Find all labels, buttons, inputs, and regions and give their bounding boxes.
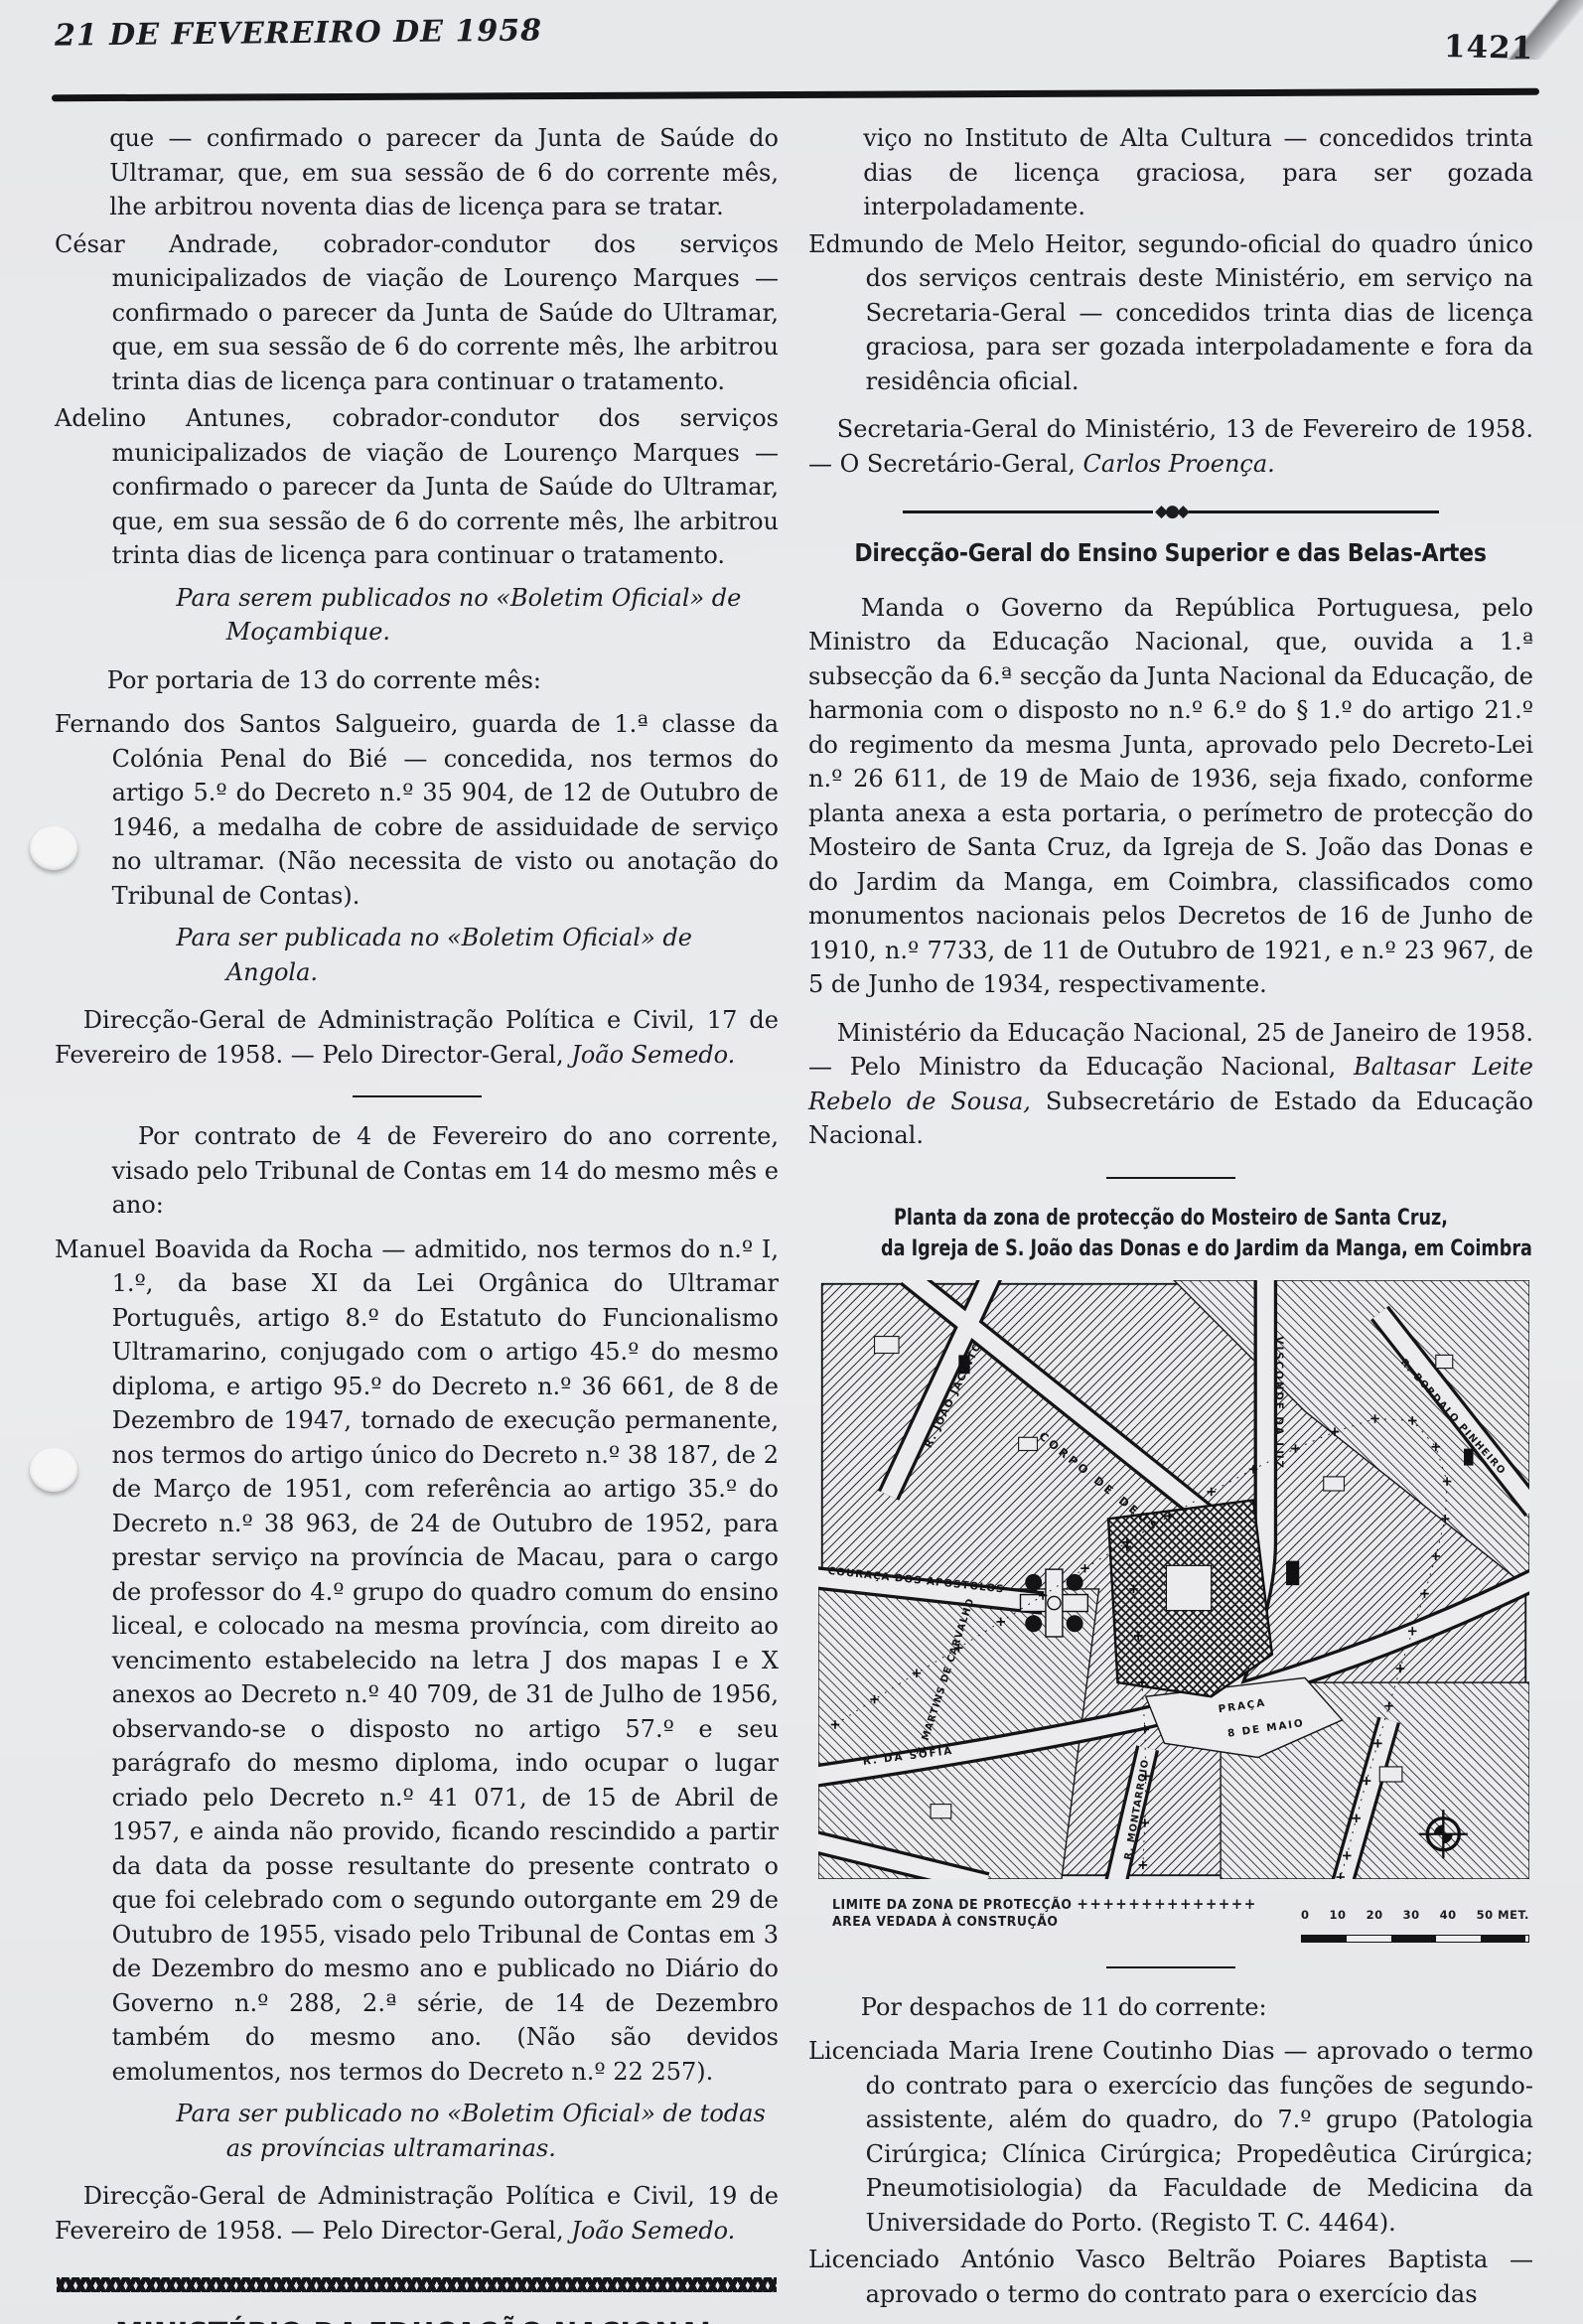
legend-limit-line: LIMITE DA ZONA DE PROTECÇÃO ++++++++++++… — [832, 1896, 1257, 1914]
map-title: Planta da zona de protecção do Mosteiro … — [808, 1203, 1533, 1264]
scale-tick: 10 — [1330, 1898, 1347, 1933]
diamond-ornament: ◆●◆ — [903, 507, 1439, 516]
scale-labels: 0 10 20 30 40 50 MET. — [1301, 1898, 1529, 1933]
columns: que — confirmado o parecer da Junta de S… — [55, 121, 1533, 2324]
map-svg: COURAÇA DOS APOSTOLOS R. JOÃO JACINTO CO… — [818, 1280, 1529, 1879]
map-title-line2: da Igreja de S. João das Donas e do Jard… — [881, 1234, 1461, 1264]
monastery-block — [1108, 1500, 1272, 1696]
legend-limit-label: LIMITE DA ZONA DE PROTECÇÃO — [832, 1897, 1073, 1913]
scale-tick: 40 — [1440, 1898, 1457, 1933]
section-divider — [1106, 1966, 1235, 1968]
scale-bar-graphic — [1301, 1935, 1529, 1943]
paragraph: que — confirmado o parecer da Junta de S… — [55, 121, 779, 224]
paragraph: César Andrade, cobrador-condutor dos ser… — [55, 227, 779, 399]
paragraph: Por contrato de 4 de Fevereiro do ano co… — [55, 1119, 779, 1223]
section-divider — [353, 1095, 482, 1097]
paragraph: viço no Instituto de Alta Cultura — conc… — [808, 121, 1533, 224]
page-number: 1421 — [1443, 29, 1533, 67]
header-date: 21 DE FEVEREIRO DE 1958 — [55, 13, 542, 53]
dg-heading: Direcção-Geral do Ensino Superior e das … — [808, 536, 1533, 571]
right-column: viço no Instituto de Alta Cultura — conc… — [808, 121, 1533, 2324]
page-header: 21 DE FEVEREIRO DE 1958 1421 — [55, 14, 1541, 83]
ornament-bar — [1189, 510, 1439, 513]
street-label: VISCONDE DA LUZ — [1273, 1336, 1285, 1469]
paragraph: Licenciado António Vasco Beltrão Poiares… — [808, 2243, 1533, 2311]
signature: Direcção-Geral de Administração Política… — [55, 2179, 779, 2248]
manga-fountain — [1020, 1569, 1087, 1637]
italic-note: Para serem publicados no «Boletim Oficia… — [55, 581, 779, 650]
italic-note: Para ser publicada no «Boletim Oficial» … — [55, 921, 779, 989]
scale-tick: 0 — [1301, 1898, 1310, 1933]
hole-punch-top — [30, 826, 77, 870]
paragraph: Por portaria de 13 do corrente mês: — [55, 663, 779, 698]
signature-name: João Semedo. — [571, 1041, 735, 1069]
map-legend: LIMITE DA ZONA DE PROTECÇÃO ++++++++++++… — [832, 1896, 1529, 1943]
hole-punch-bottom — [30, 1448, 77, 1492]
italic-note: Para ser publicado no «Boletim Oficial» … — [55, 2097, 779, 2165]
paragraph: Licenciada Maria Irene Coutinho Dias — a… — [808, 2034, 1533, 2240]
scale-tick: 50 MET. — [1477, 1898, 1529, 1933]
legend-cross-symbols: ++++++++++++++ — [1077, 1895, 1256, 1913]
map-scale-bar: 0 10 20 30 40 50 MET. — [1301, 1898, 1529, 1943]
paragraph: Adelino Antunes, cobrador-condutor dos s… — [55, 401, 779, 573]
ministry-heading: MINISTÉRIO DA EDUCAÇÃO NACIONAL — [55, 2318, 779, 2324]
ornament-bar — [903, 510, 1153, 513]
dg-heading-text: Direcção-Geral do Ensino Superior e das … — [855, 536, 1487, 571]
left-column: que — confirmado o parecer da Junta de S… — [55, 121, 779, 2324]
header-rule — [52, 88, 1539, 102]
paragraph: Edmundo de Melo Heitor, segundo-oficial … — [808, 227, 1533, 399]
legend-area-label: AREA VEDADA À CONSTRUÇÃO — [832, 1914, 1257, 1931]
signature: Direcção-Geral de Administração Política… — [55, 1003, 779, 1072]
paragraph: Por despachos de 11 do corrente: — [808, 1990, 1533, 2025]
paragraph: Manda o Governo da República Portuguesa,… — [808, 591, 1533, 1002]
chain-ornament — [57, 2277, 777, 2292]
section-divider — [1106, 1177, 1235, 1179]
signature-name: João Semedo. — [571, 2217, 735, 2245]
ministry-heading-text: MINISTÉRIO DA EDUCAÇÃO NACIONAL — [115, 2318, 718, 2324]
signature: Secretaria-Geral do Ministério, 13 de Fe… — [808, 412, 1533, 481]
gazette-page: 21 DE FEVEREIRO DE 1958 1421 que — confi… — [0, 0, 1583, 2324]
signature-name: Carlos Proença. — [1082, 450, 1274, 478]
ornament-diamonds: ◆●◆ — [1153, 507, 1189, 516]
signature: Ministério da Educação Nacional, 25 de J… — [808, 1016, 1533, 1153]
paragraph: Manuel Boavida da Rocha — admitido, nos … — [55, 1233, 779, 2090]
city-map: COURAÇA DOS APOSTOLOS R. JOÃO JACINTO CO… — [818, 1280, 1533, 1943]
map-title-line1: Planta da zona de protecção do Mosteiro … — [881, 1203, 1461, 1234]
paragraph: Fernando dos Santos Salgueiro, guarda de… — [55, 707, 779, 913]
legend-labels: LIMITE DA ZONA DE PROTECÇÃO ++++++++++++… — [832, 1896, 1257, 1931]
scale-tick: 30 — [1403, 1898, 1420, 1933]
scale-tick: 20 — [1367, 1898, 1383, 1933]
